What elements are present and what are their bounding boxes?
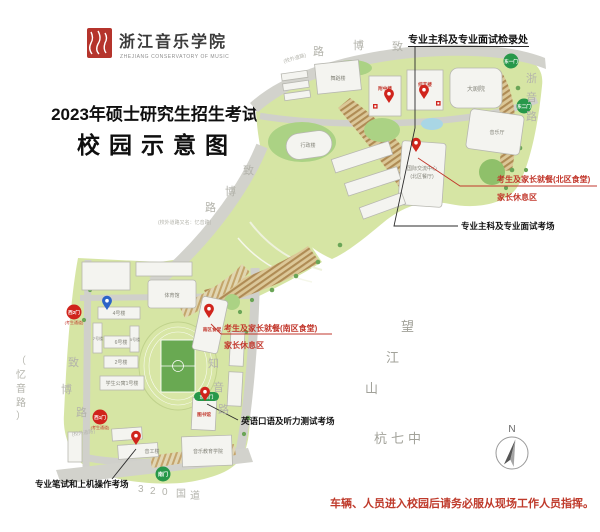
gate-east-2-label: 东二门 [517,103,531,110]
north-dining-label: 考生及家长就餐(北区食堂) [497,174,591,184]
header: 浙江音乐学院 ZHEJIANG CONSERVATORY OF MUSIC 20… [51,28,259,159]
english-exam-label: 英语口语及听力测试考场 [240,416,335,426]
north-west-building [281,70,311,100]
compass: N [496,424,528,469]
building-7-label: 7号楼 [93,335,103,341]
dance-building-label: 舞蹈楼 [330,75,345,82]
road-zheyin-3: 路 [526,110,537,123]
road-zhiyin-3: 路 [218,403,229,416]
interview-exam-label: 专业主科及专业面试考场 [461,221,555,231]
road-zhibo-top-1: 致 [392,39,403,53]
south-west-road [86,260,88,468]
road-yiyin-3: 音 [16,382,26,395]
footer-note: 车辆、人员进入校园后请务必服从现场工作人员指挥。 [330,496,594,510]
grand-theatre-label: 大剧院 [467,85,485,93]
library-label: 图书馆 [197,411,211,418]
logo-cn: 浙江音乐学院 [119,32,227,51]
campus-map-svg: 浙江音乐学院 ZHEJIANG CONSERVATORY OF MUSIC 20… [0,0,600,532]
road-zhibo-left-2: 博 [61,383,72,396]
gate-south-label: 南门 [158,471,168,478]
road-zhibo-top-3: 路 [313,45,324,58]
page-title: 2023年硕士研究生招生考试 [51,104,259,124]
south-top-building-2 [136,262,192,276]
pond [421,118,443,130]
compass-n-label: N [508,424,515,435]
road-yiyin-2: 忆 [16,368,26,381]
page-subtitle: 校园示意图 [77,132,237,159]
outside-road-note-top: (校外道路) [283,52,308,65]
road-zhiyin-1: 知 [208,356,219,370]
building-2-label: 2号楼 [115,359,128,366]
music-education-label: 音乐教育学院 [193,448,223,455]
gate-west-2-label: 西2门 [68,309,80,316]
road-zhibo-mid-3: 路 [205,201,216,214]
gymnasium-label: 体育馆 [164,292,179,299]
concert-hall-label: 音乐厅 [489,129,504,136]
gate-west-1-label: 西1门 [94,414,106,421]
football-pitch [161,340,195,392]
road-zheyin-2: 音 [526,90,537,104]
south-rest-label: 家长休息区 [224,340,264,350]
road-zheyin-1: 浙 [526,72,537,85]
g320-4: 国 [176,488,186,500]
road-zhibo-left-3: 路 [76,406,87,419]
g320-2: 2 [150,486,156,497]
north-rest-label: 家长休息区 [497,192,537,202]
g320-5: 道 [190,489,200,502]
building-6-label: 6号楼 [115,339,128,346]
south-top-building-1 [82,262,130,290]
gate-east-1-label: 东一门 [504,58,518,65]
road-zhibo-mid-2: 博 [225,185,236,198]
gate-east-1: 东一门 [504,54,519,69]
written-exam-label: 专业笔试和上机操作考场 [35,479,129,489]
road-yiyin-4: 路 [16,396,26,409]
place-wangjiang-3: 山 [365,381,378,396]
gate-west-2-note: (考生通道) [65,319,84,325]
school-seal-icon [87,28,112,58]
road-yiyin-5: ） [16,410,26,422]
intl-exchange-label-2: (北区餐厅) [410,173,434,180]
admin-label: 行政楼 [300,142,315,149]
gate-south: 南门 [156,467,171,482]
place-wangjiang-2: 江 [386,350,399,365]
road-zhibo-left-1: 致 [68,355,79,369]
campus-map-page: 浙江音乐学院 ZHEJIANG CONSERVATORY OF MUSIC 20… [0,0,600,532]
yingong-label: 音工楼 [144,448,159,455]
place-wangjiang-1: 望 [401,319,414,334]
outside-road-alias-note: (校外道路又名：忆音路) [158,219,212,226]
south-dining-label: 考生及家长就餐(南区食堂) [224,323,318,333]
building-5-label: 5号楼 [130,336,140,342]
east-slab-2 [227,372,243,407]
checkin-label: 专业主科及专业面试检录处 [408,33,529,46]
road-zhiyin-2: 音 [213,380,224,394]
building-4-label: 4号楼 [113,310,126,317]
road-zhibo-top-2: 博 [353,39,364,52]
g320-1: 3 [138,484,144,495]
dorm-1-label: 学生公寓1号楼 [106,380,139,387]
road-zhibo-mid-1: 致 [243,163,254,177]
g320-3: 0 [162,487,168,498]
road-yiyin-1: （ [16,355,26,367]
logo-en: ZHEJIANG CONSERVATORY OF MUSIC [120,54,229,60]
place-hangqizhong: 杭七中 [374,431,425,446]
intl-exchange-label-1: 国际交流中心 [407,165,437,172]
